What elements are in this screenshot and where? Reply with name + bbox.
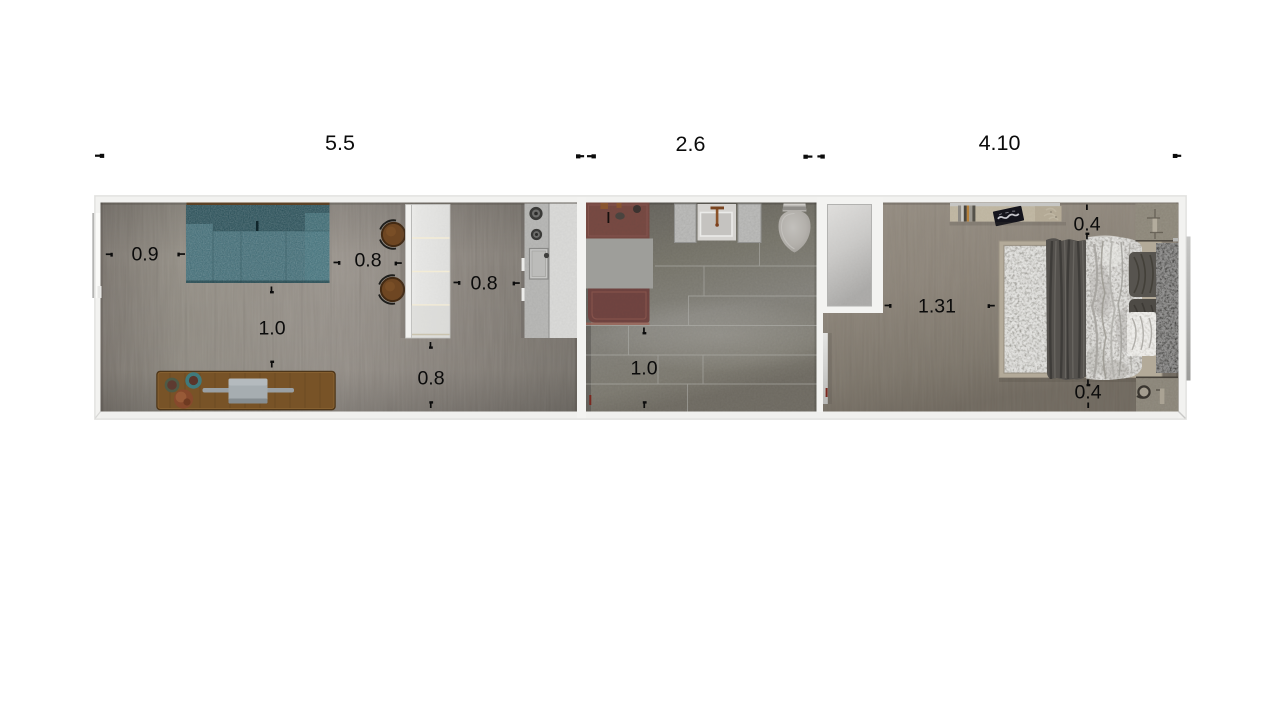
svg-text:0.9: 0.9 <box>131 244 158 266</box>
svg-text:5.5: 5.5 <box>325 131 355 155</box>
svg-text:1.31: 1.31 <box>918 296 956 318</box>
svg-text:0.8: 0.8 <box>470 273 497 295</box>
svg-text:1.0: 1.0 <box>258 318 285 340</box>
svg-text:2.6: 2.6 <box>676 132 706 156</box>
svg-text:4.10: 4.10 <box>979 131 1021 155</box>
svg-text:0.8: 0.8 <box>417 368 444 390</box>
svg-text:0.8: 0.8 <box>354 250 381 272</box>
svg-text:0.4: 0.4 <box>1073 214 1100 236</box>
svg-text:1.0: 1.0 <box>630 358 657 380</box>
